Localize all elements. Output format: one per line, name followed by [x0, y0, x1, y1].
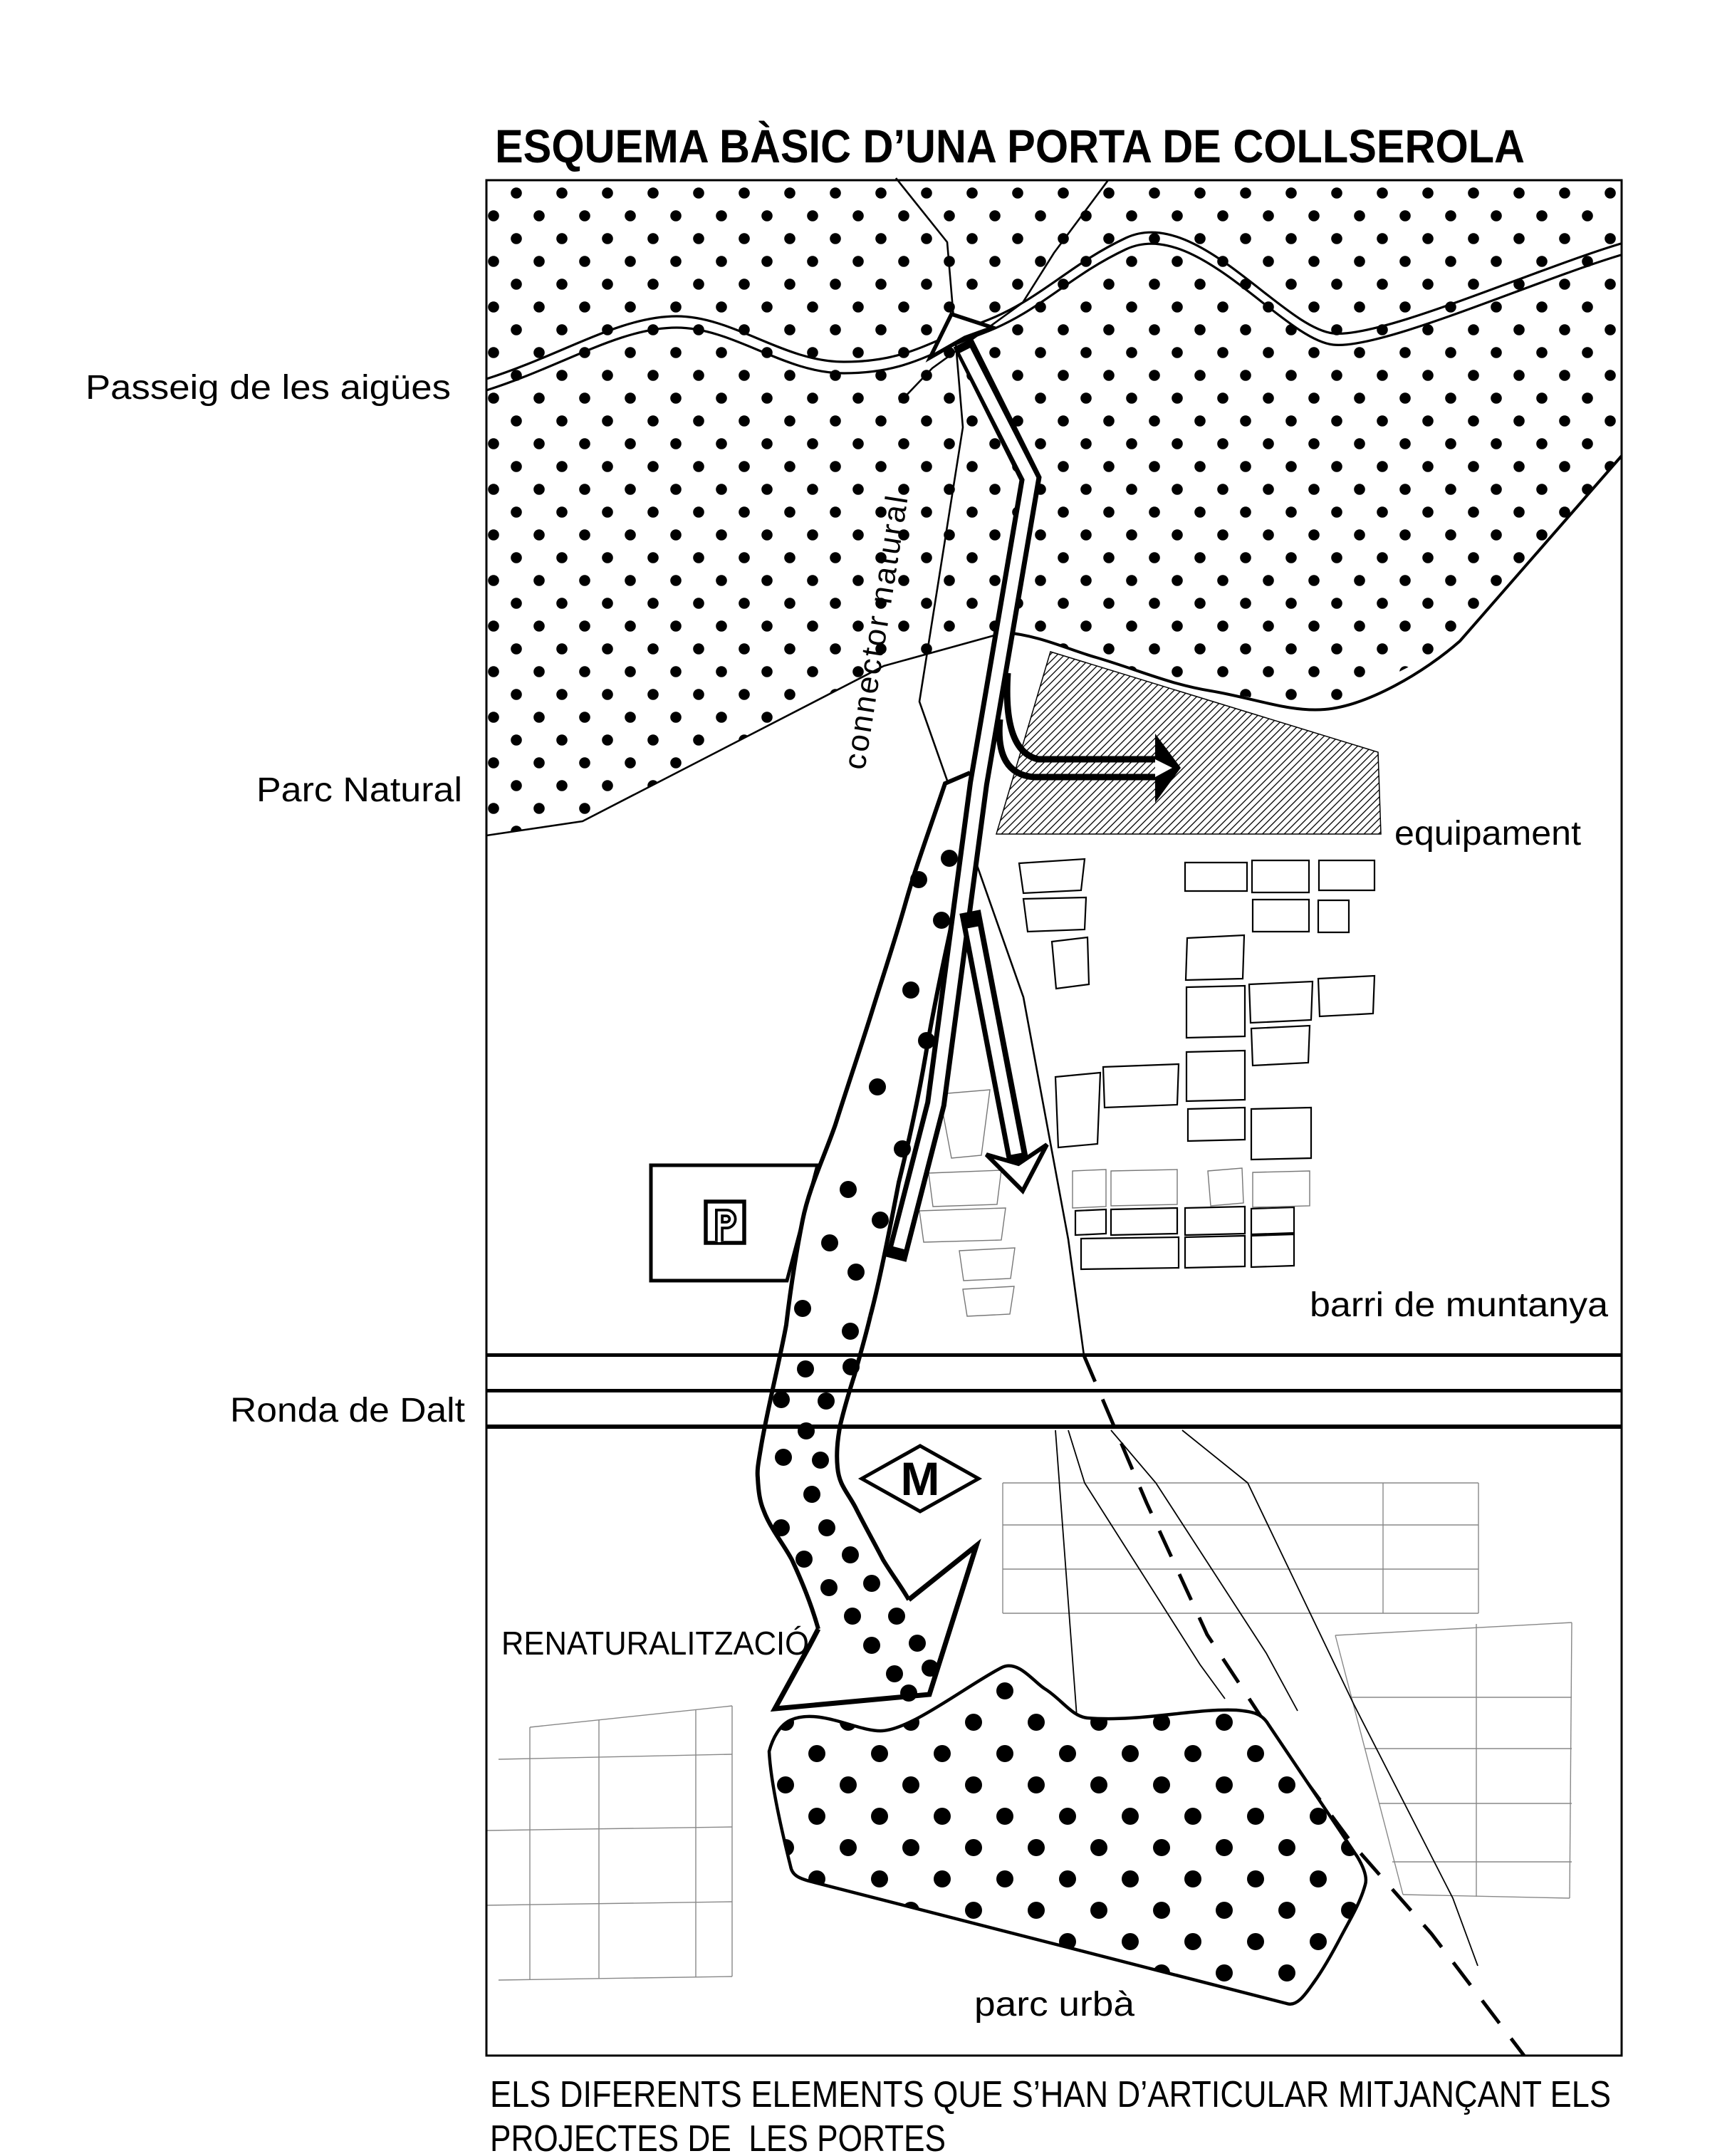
svg-text:ELS DIFERENTS ELEMENTS QUE S’H: ELS DIFERENTS ELEMENTS QUE S’HAN D’ARTIC…: [490, 2074, 1611, 2115]
svg-text:Passeig de les aigües: Passeig de les aigües: [85, 369, 451, 407]
svg-text:Ronda de Dalt: Ronda de Dalt: [230, 1392, 465, 1429]
svg-text:barri de muntanya: barri de muntanya: [1310, 1286, 1608, 1324]
svg-text:RENATURALITZACIÓ: RENATURALITZACIÓ: [501, 1625, 809, 1662]
svg-text:M: M: [901, 1452, 940, 1505]
svg-text:Parc Natural: Parc Natural: [256, 771, 462, 809]
svg-text:ESQUEMA BÀSIC D’UNA PORTA DE C: ESQUEMA BÀSIC D’UNA PORTA DE COLLSEROLA: [495, 120, 1525, 172]
svg-text:equipament: equipament: [1394, 815, 1581, 853]
svg-text:PROJECTES DE LES PORTES: PROJECTES DE LES PORTES: [490, 2118, 946, 2156]
svg-text:parc urbà: parc urbà: [974, 1986, 1134, 2024]
